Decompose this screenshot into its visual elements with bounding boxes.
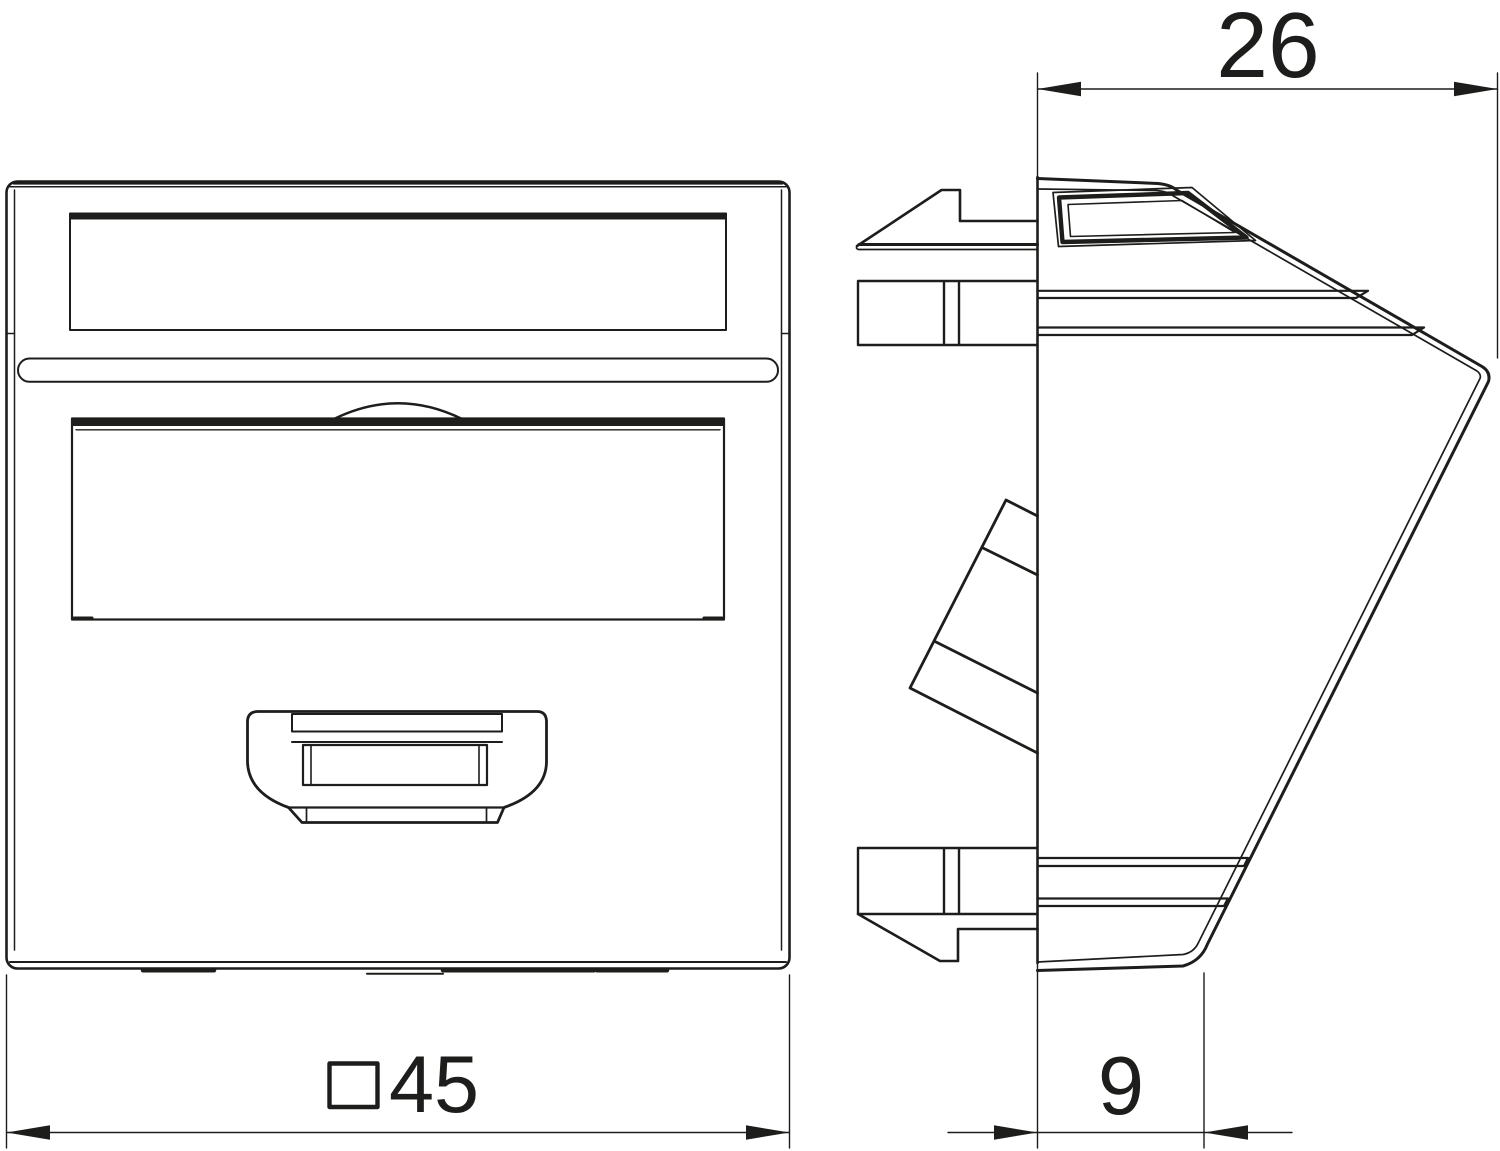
front-window-arch bbox=[335, 403, 461, 418]
dim-label-26: 26 bbox=[1216, 0, 1319, 97]
side-cover-inner-outline bbox=[1038, 189, 1481, 962]
front-window bbox=[72, 419, 724, 620]
dim9-arrow-left bbox=[994, 1125, 1038, 1139]
dim45-arrow-left bbox=[7, 1125, 51, 1139]
shelf-strip-4 bbox=[1038, 899, 1229, 907]
side-window-inner bbox=[1068, 201, 1235, 237]
latch-top bbox=[858, 281, 1038, 345]
dimension-45: 45 bbox=[7, 975, 790, 1148]
latch-bottom bbox=[858, 848, 1038, 914]
dimension-9: 9 bbox=[948, 973, 1292, 1148]
mounting-claw-bottom bbox=[858, 914, 1038, 961]
shelf-strip-3 bbox=[1038, 858, 1249, 866]
technical-drawing: 26 45 9 bbox=[0, 0, 1500, 1151]
dim-label-45: 45 bbox=[389, 1040, 479, 1130]
dim26-arrow-right bbox=[1454, 82, 1498, 96]
claw-top-bar-lower bbox=[857, 246, 1038, 250]
dim9-arrow-right bbox=[1204, 1125, 1248, 1139]
side-view bbox=[857, 73, 1490, 1148]
keystone-cutout bbox=[248, 712, 547, 823]
drawing-sheet: 26 45 9 bbox=[0, 0, 1500, 1151]
dim-label-9: 9 bbox=[1098, 1039, 1144, 1132]
claw-top-outline bbox=[857, 190, 1038, 246]
square-symbol bbox=[330, 1064, 378, 1108]
front-divider-band bbox=[18, 359, 778, 382]
keystone-plug-opening bbox=[303, 745, 487, 785]
front-view bbox=[7, 182, 790, 974]
keystone-foot-end-lines bbox=[307, 808, 487, 823]
dim26-arrow-left bbox=[1038, 82, 1082, 96]
front-label-strip bbox=[70, 214, 726, 331]
keystone-latch-slot bbox=[292, 714, 502, 732]
dimension-26: 26 bbox=[1038, 0, 1498, 358]
front-plate-outline bbox=[7, 182, 790, 969]
shelf-strip-1 bbox=[1038, 291, 1369, 298]
dim45-arrow-right bbox=[746, 1125, 790, 1139]
keystone-plug-opening-inner-lines bbox=[311, 745, 479, 785]
support-ribs bbox=[910, 500, 1038, 753]
mounting-claw-top bbox=[857, 190, 1038, 250]
front-label-strip-top-band bbox=[70, 213, 726, 220]
side-shelf-strips bbox=[1038, 291, 1425, 906]
shelf-strip-2 bbox=[1038, 328, 1425, 336]
front-window-top-band bbox=[72, 419, 724, 427]
